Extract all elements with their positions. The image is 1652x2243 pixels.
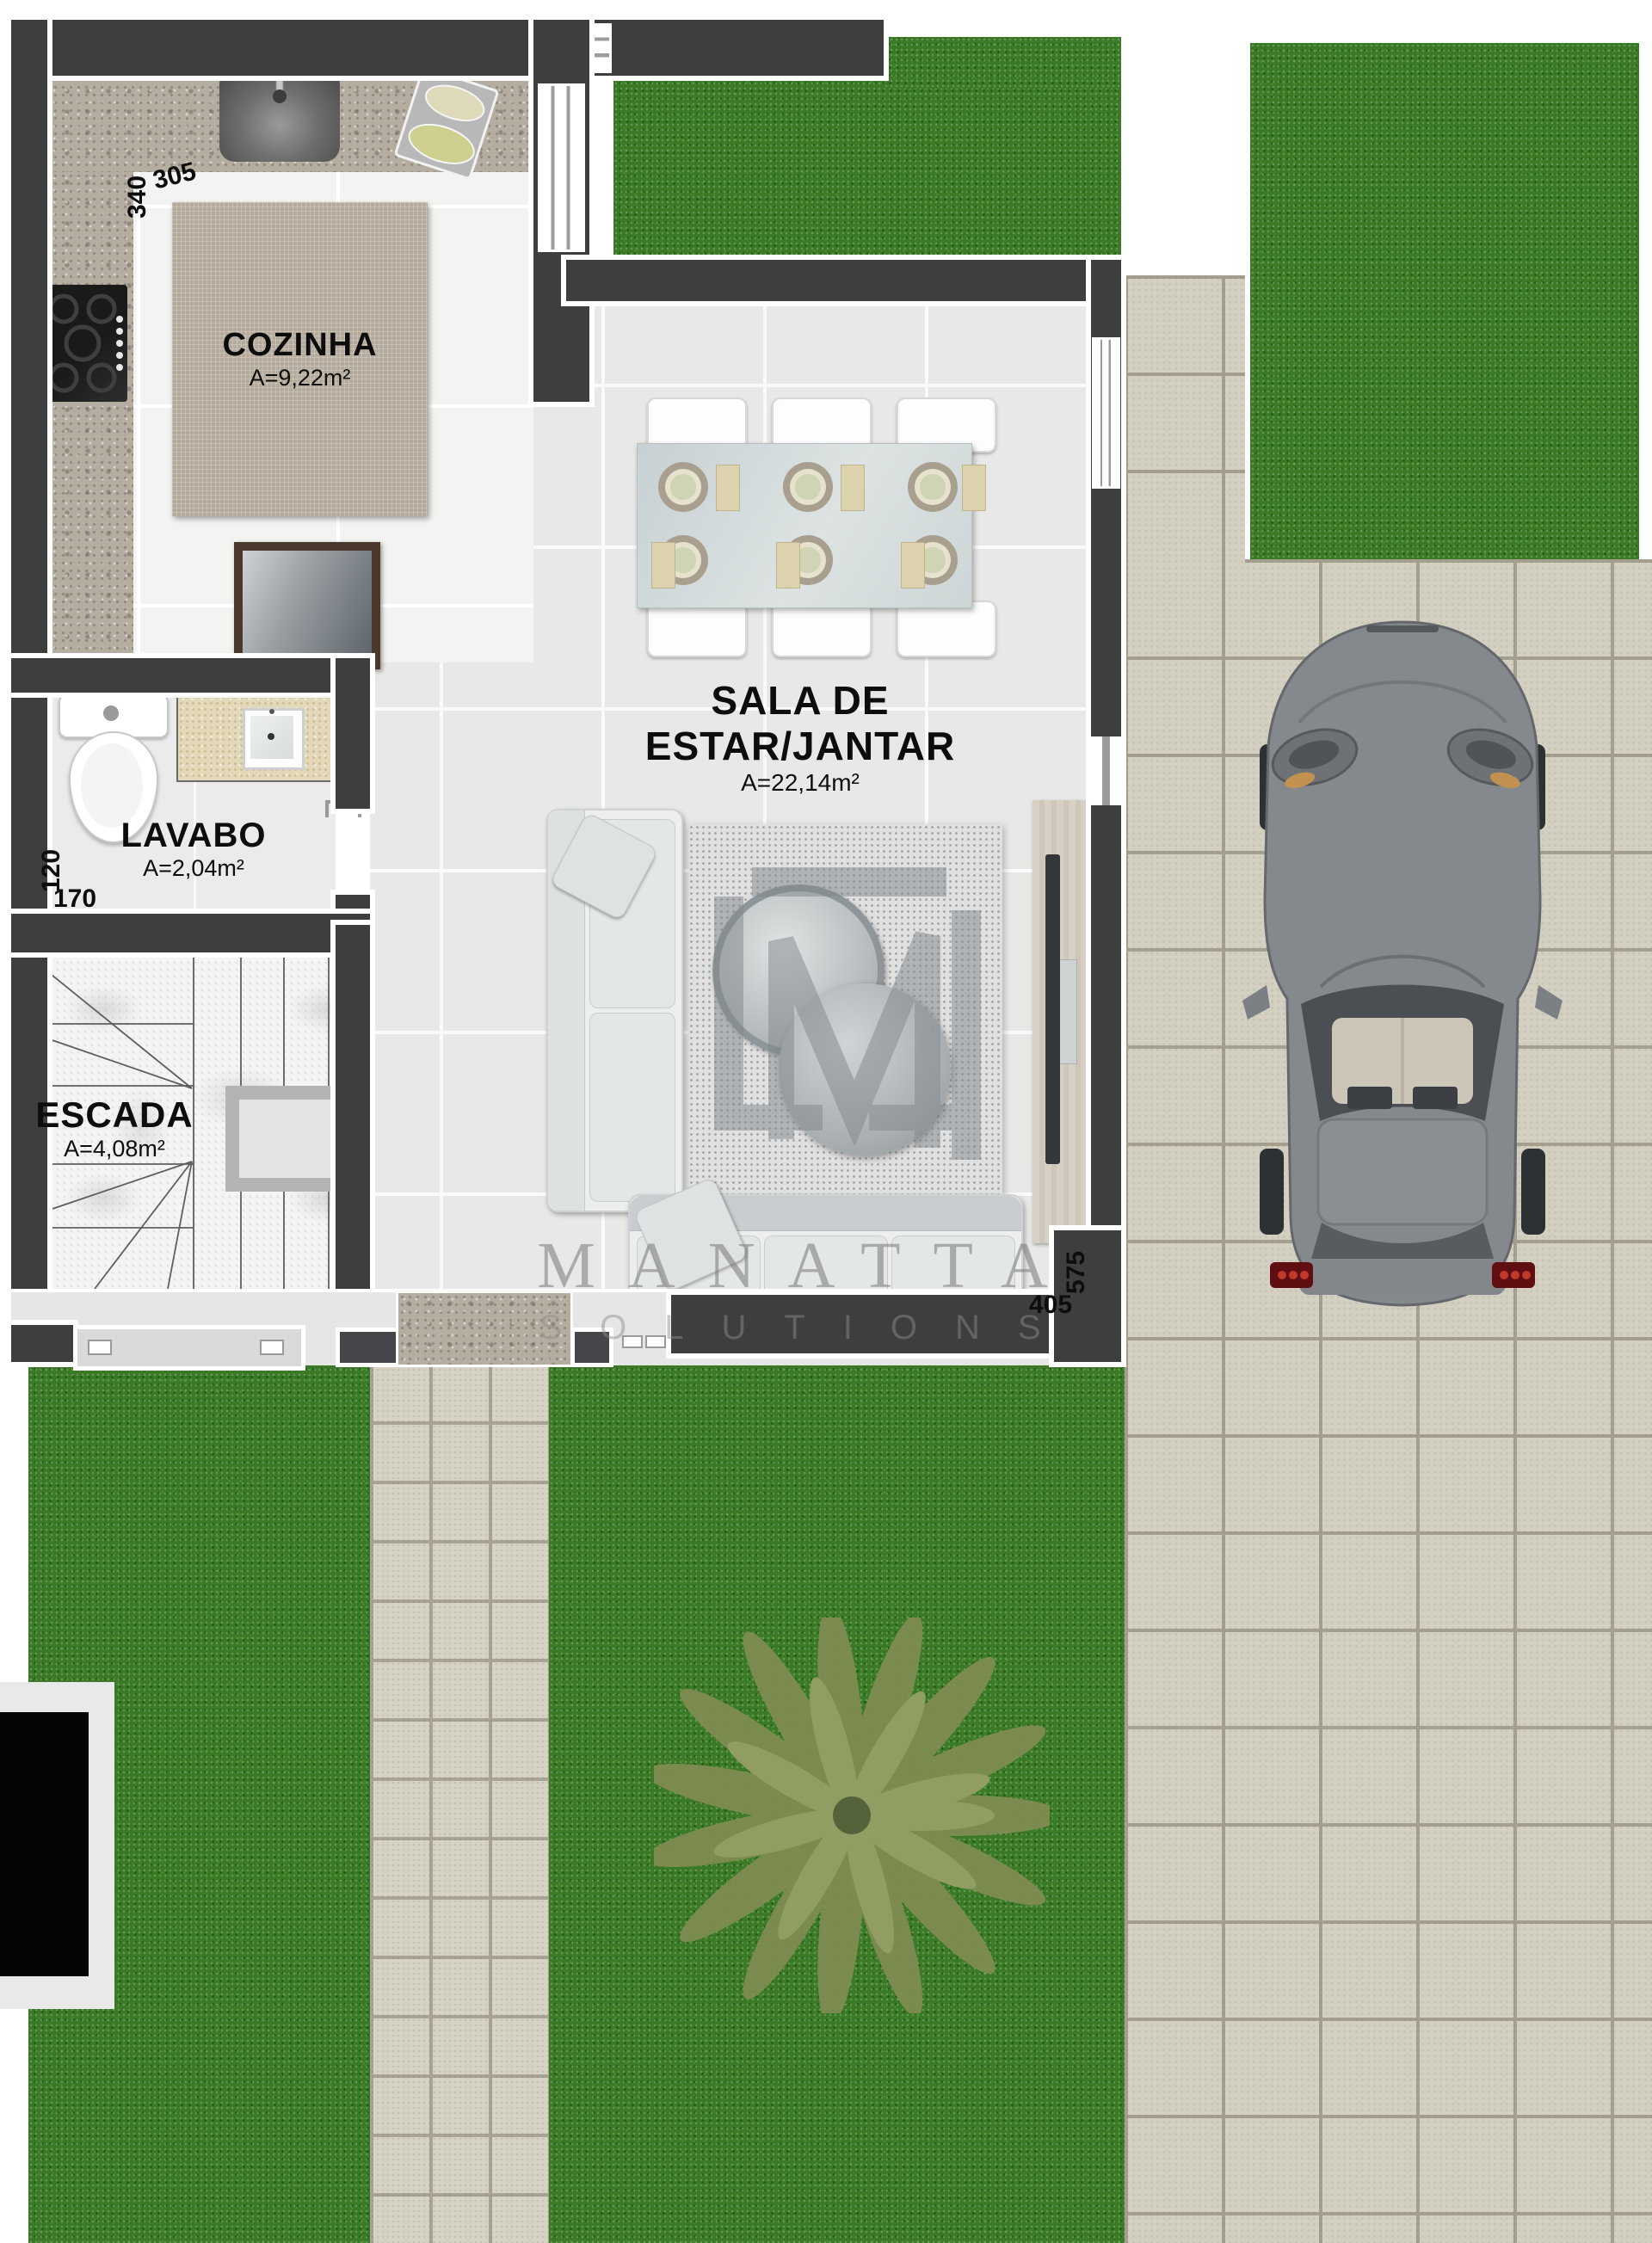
room-name: SALA DE ESTAR/JANTAR <box>551 678 1050 769</box>
room-label-cozinha: COZINHA A=9,22m² <box>172 327 428 391</box>
room-label-escada: ESCADA A=4,08m² <box>33 1094 196 1162</box>
room-label-lavabo: LAVABO A=2,04m² <box>86 816 301 882</box>
wall-lavabo-top <box>11 658 370 693</box>
car <box>1239 615 1566 1312</box>
side-paver-strip <box>1125 275 1245 564</box>
window-mullion-right <box>1091 736 1121 805</box>
room-area: A=9,22m² <box>172 365 428 391</box>
placemat <box>716 465 740 511</box>
taillight-left <box>1270 1262 1313 1288</box>
tv <box>1045 854 1060 1164</box>
wall-lavabo-right <box>336 658 370 809</box>
tv-bracket <box>1058 959 1077 1064</box>
window-bottom-1 <box>336 1328 401 1367</box>
place-setting <box>783 462 833 512</box>
lavabo-counter <box>176 693 339 782</box>
watermark-brand: MANATTA <box>508 1229 1110 1303</box>
room-label-sala: SALA DE ESTAR/JANTAR A=22,14m² <box>551 678 1050 797</box>
kitchen-counter-left <box>36 172 133 662</box>
place-setting <box>658 462 708 512</box>
room-name: COZINHA <box>172 327 428 365</box>
watermark: MANATTA SOLUTIONS <box>508 1229 1110 1347</box>
window-kitchen-right <box>540 86 583 250</box>
watermark-tagline: SOLUTIONS <box>508 1309 1110 1347</box>
courtyard-grass <box>613 76 1121 260</box>
window-stairs <box>73 1325 305 1371</box>
room-area: A=4,08m² <box>33 1136 196 1162</box>
dining-chair <box>772 601 872 657</box>
wall-top <box>11 20 884 76</box>
taillight-right <box>1492 1262 1535 1288</box>
room-name: ESCADA <box>33 1094 196 1136</box>
wall-lavabo-bottom <box>11 914 370 952</box>
wall-courtyard-bottom <box>566 260 1121 301</box>
placemat <box>962 465 986 511</box>
top-right-lawn <box>1250 43 1639 559</box>
placemat <box>901 542 925 588</box>
wall-stairs-right <box>336 925 370 1289</box>
sideboard-cabinet <box>234 542 380 669</box>
wall-bottom-a <box>11 1325 73 1362</box>
brand-logo-watermark <box>714 867 981 1160</box>
stairs-handrail <box>225 1086 349 1192</box>
utility-box <box>0 1712 89 1976</box>
room-name: LAVABO <box>86 816 301 855</box>
dining-chair <box>897 601 996 657</box>
courtyard-grass-upper <box>884 37 1121 89</box>
cooktop <box>41 285 127 402</box>
room-area: A=22,14m² <box>551 769 1050 797</box>
window-right <box>1094 340 1118 486</box>
dim-170: 170 <box>53 884 96 914</box>
dining-chair <box>647 601 747 657</box>
placemat <box>841 465 865 511</box>
placemat <box>651 542 675 588</box>
placemat <box>776 542 800 588</box>
room-area: A=2,04m² <box>86 855 301 882</box>
dim-340: 340 <box>123 176 152 219</box>
palm-tree <box>654 1618 1050 2013</box>
garden-walkway <box>370 1362 549 2243</box>
place-setting <box>908 462 958 512</box>
floor-plan-page: COZINHA A=9,22m² SALA DE ESTAR/JANTAR A=… <box>0 0 1652 2243</box>
